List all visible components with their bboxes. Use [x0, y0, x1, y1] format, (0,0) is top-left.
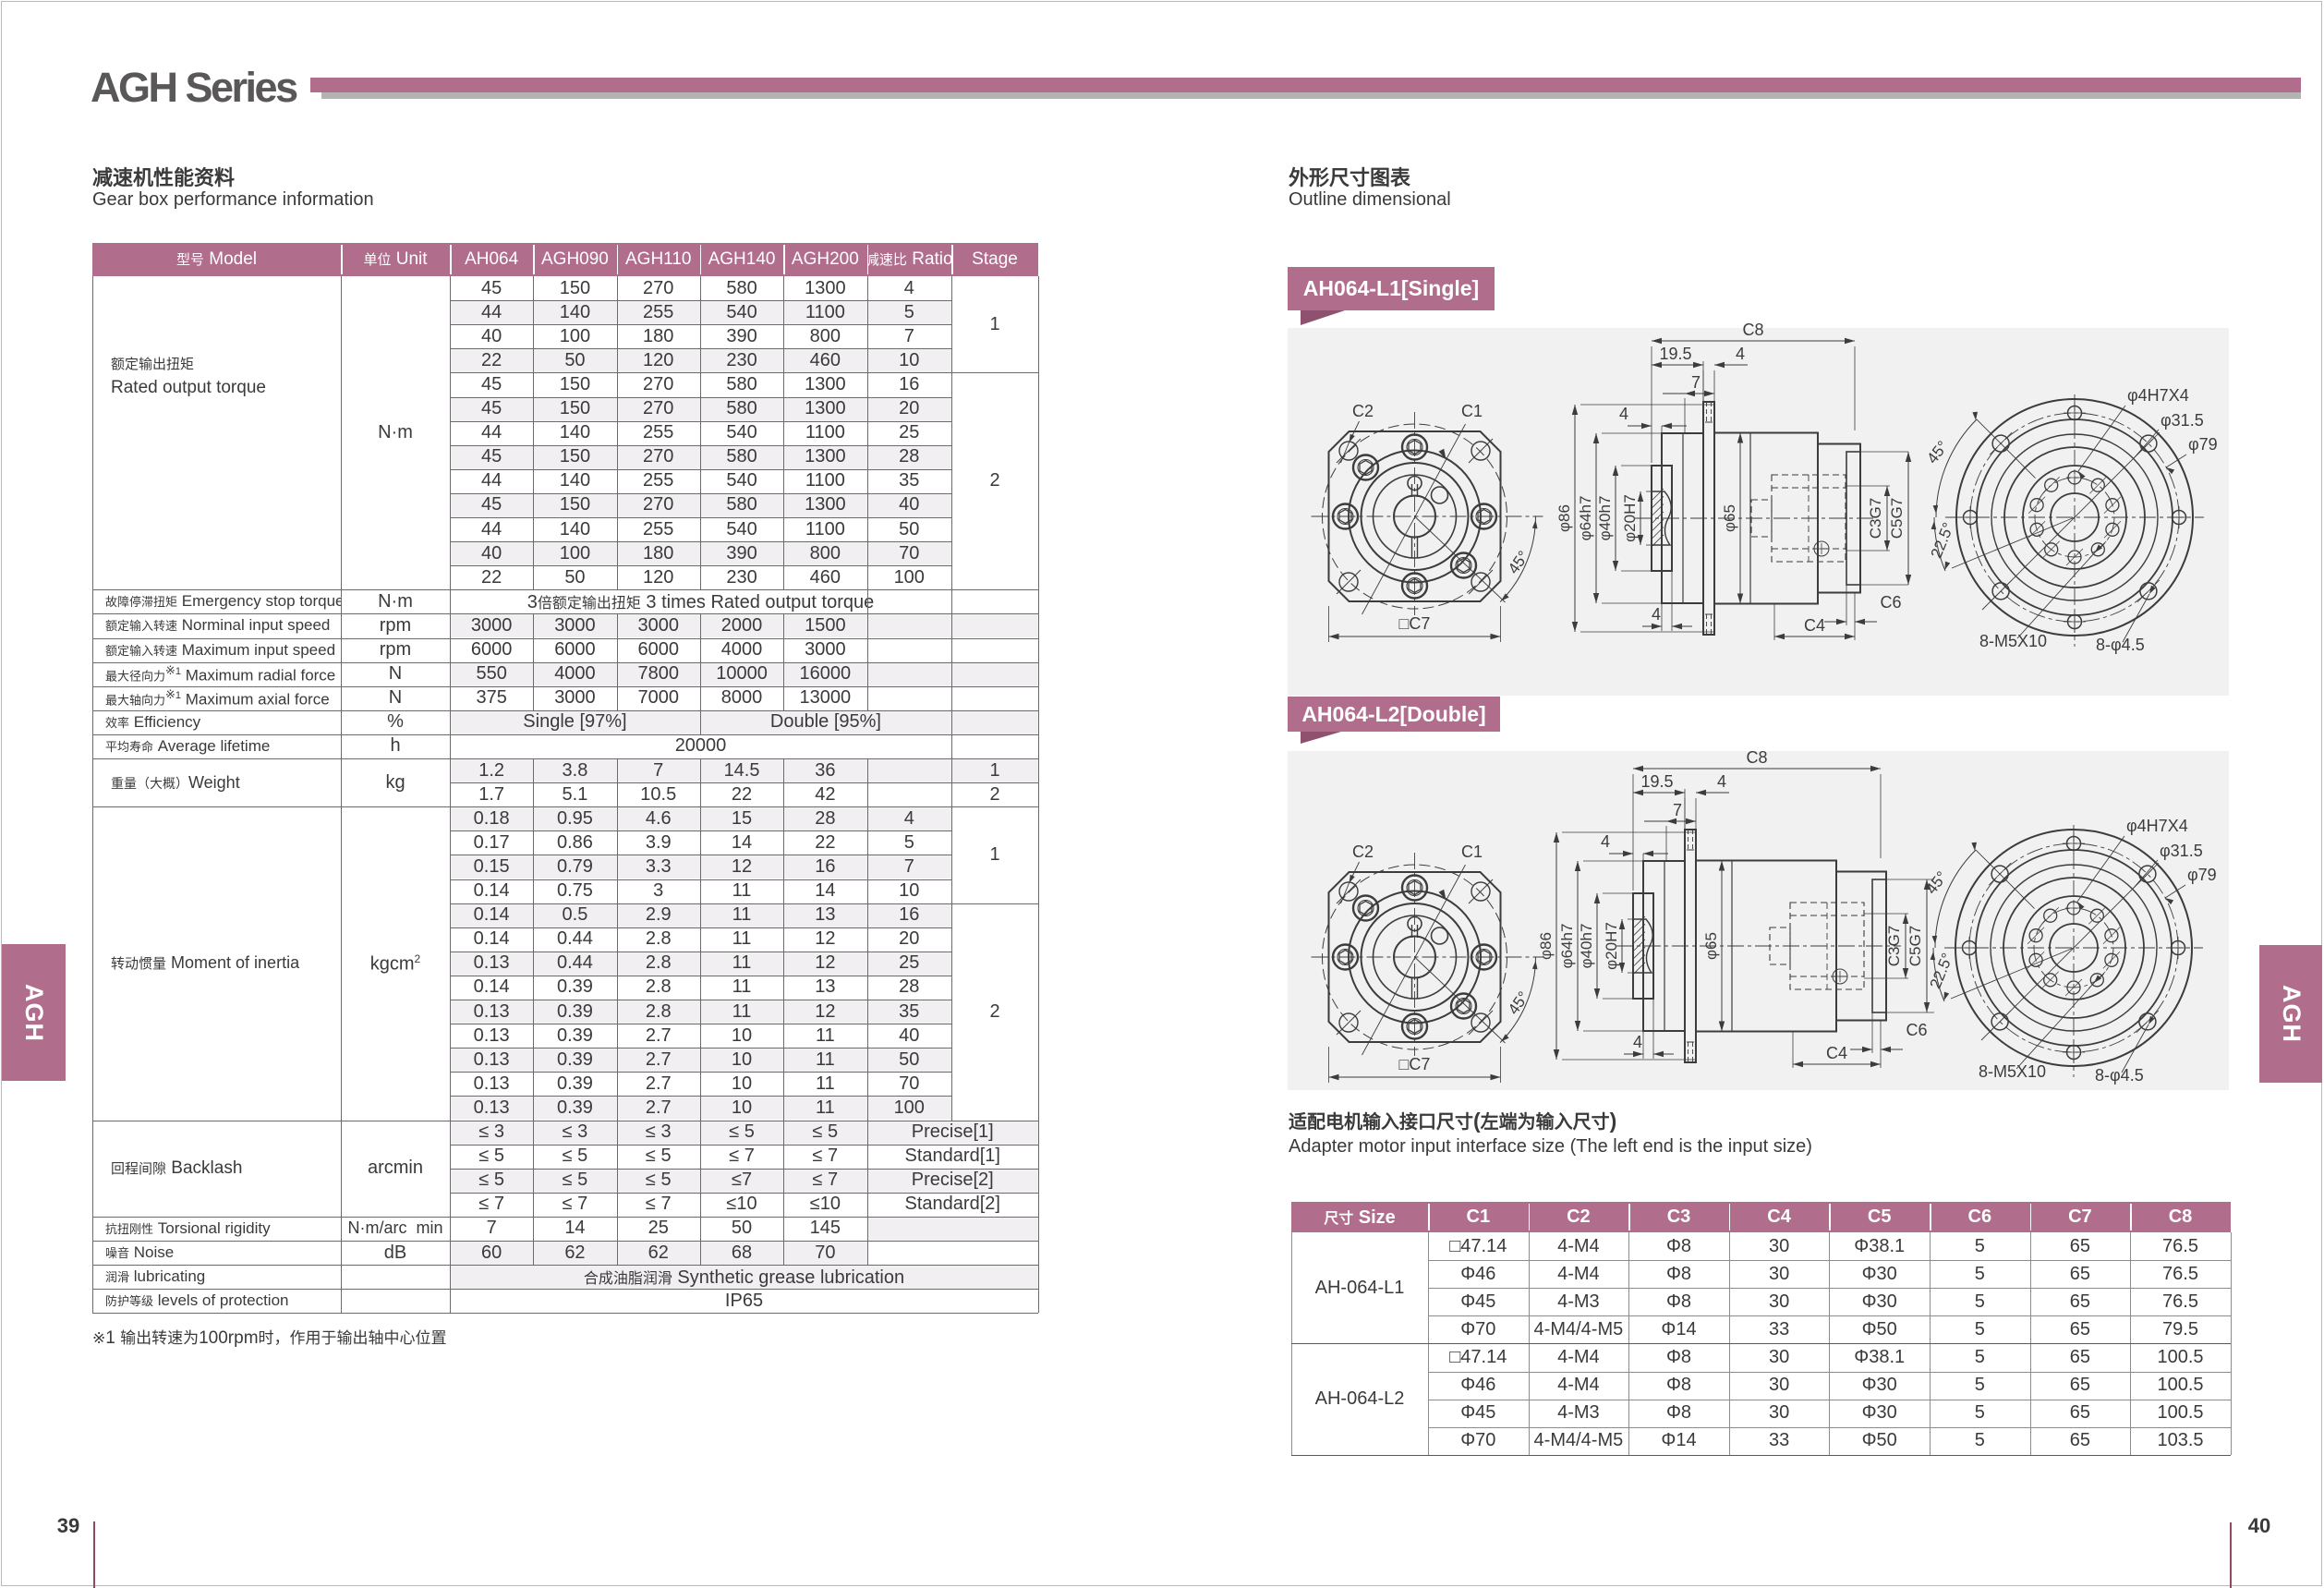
svg-text:4: 4	[1717, 772, 1726, 791]
svg-text:4: 4	[1633, 1033, 1642, 1051]
svg-text:φ20H7: φ20H7	[1603, 922, 1620, 970]
svg-text:φ86: φ86	[1555, 504, 1573, 532]
svg-text:C4: C4	[1804, 616, 1825, 635]
svg-text:45°: 45°	[1505, 988, 1532, 1018]
svg-text:φ40h7: φ40h7	[1578, 924, 1595, 969]
svg-text:φ65: φ65	[1721, 504, 1738, 532]
svg-text:C8: C8	[1742, 321, 1763, 339]
svg-text:φ40h7: φ40h7	[1596, 496, 1614, 541]
svg-text:C3G7: C3G7	[1885, 926, 1903, 966]
svg-text:C5G7: C5G7	[1888, 498, 1906, 539]
svg-text:φ86: φ86	[1537, 932, 1555, 960]
svg-text:4: 4	[1652, 605, 1661, 624]
svg-text:19.5: 19.5	[1640, 772, 1673, 791]
svg-text:φ64h7: φ64h7	[1577, 496, 1594, 541]
svg-text:□C7: □C7	[1399, 614, 1431, 633]
svg-text:C2: C2	[1352, 842, 1374, 861]
svg-text:φ79: φ79	[2188, 435, 2218, 454]
svg-text:C6: C6	[1880, 593, 1901, 612]
svg-text:4: 4	[1601, 832, 1610, 851]
svg-text:4: 4	[1619, 405, 1628, 423]
svg-text:□C7: □C7	[1399, 1055, 1431, 1073]
svg-text:C5G7: C5G7	[1906, 926, 1924, 966]
svg-text:φ31.5: φ31.5	[2161, 411, 2204, 430]
svg-text:φ31.5: φ31.5	[2160, 842, 2203, 860]
svg-text:4: 4	[1736, 345, 1745, 363]
svg-text:φ65: φ65	[1702, 932, 1720, 960]
svg-text:C1: C1	[1461, 842, 1483, 861]
svg-text:19.5: 19.5	[1659, 345, 1691, 363]
svg-text:45°: 45°	[1505, 548, 1532, 577]
svg-text:8-φ4.5: 8-φ4.5	[2096, 636, 2145, 654]
svg-text:C4: C4	[1826, 1044, 1847, 1062]
svg-text:8-φ4.5: 8-φ4.5	[2095, 1066, 2144, 1085]
svg-text:7: 7	[1673, 801, 1682, 819]
svg-text:C2: C2	[1352, 402, 1374, 420]
svg-text:8-M5X10: 8-M5X10	[1979, 1062, 2046, 1081]
svg-text:C8: C8	[1746, 748, 1767, 767]
svg-text:φ64h7: φ64h7	[1558, 924, 1576, 969]
svg-text:φ4H7X4: φ4H7X4	[2126, 817, 2188, 835]
svg-text:7: 7	[1691, 373, 1701, 392]
svg-text:C1: C1	[1461, 402, 1483, 420]
svg-text:22.5°: 22.5°	[1927, 951, 1957, 991]
svg-text:C6: C6	[1906, 1021, 1927, 1039]
svg-text:C3G7: C3G7	[1867, 498, 1884, 539]
svg-text:8-M5X10: 8-M5X10	[1979, 632, 2047, 650]
svg-text:22.5°: 22.5°	[1928, 520, 1958, 561]
svg-text:φ4H7X4: φ4H7X4	[2127, 386, 2189, 405]
svg-text:φ79: φ79	[2187, 866, 2217, 884]
svg-text:φ20H7: φ20H7	[1621, 494, 1639, 542]
